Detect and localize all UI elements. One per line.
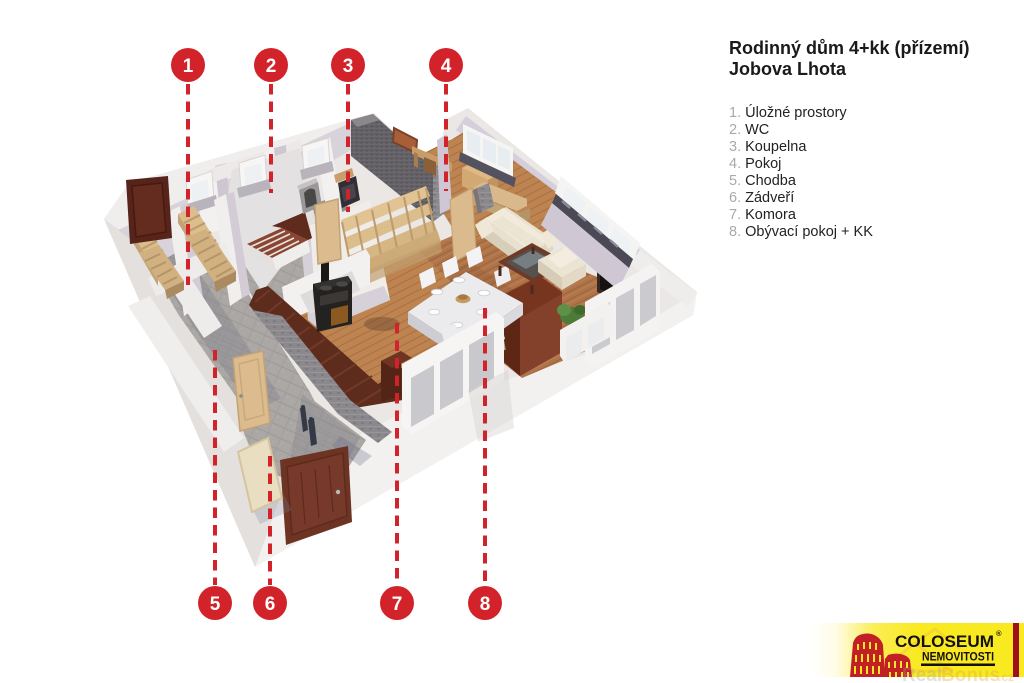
- svg-text:NEMOVITOSTI: NEMOVITOSTI: [922, 652, 994, 664]
- svg-text:4: 4: [441, 56, 452, 77]
- svg-text:COLOSEUM: COLOSEUM: [895, 632, 994, 651]
- svg-text:Real: Real: [902, 665, 942, 683]
- svg-text:3: 3: [343, 56, 354, 77]
- svg-text:2: 2: [266, 56, 277, 77]
- svg-text:Bonus: Bonus: [941, 665, 1000, 683]
- svg-text:.cz: .cz: [998, 670, 1014, 683]
- svg-text:5: 5: [210, 594, 221, 615]
- svg-text:7: 7: [392, 594, 403, 615]
- svg-text:8: 8: [480, 594, 491, 615]
- svg-text:6: 6: [265, 594, 276, 615]
- svg-text:1: 1: [183, 56, 194, 77]
- svg-text:®: ®: [996, 629, 1002, 638]
